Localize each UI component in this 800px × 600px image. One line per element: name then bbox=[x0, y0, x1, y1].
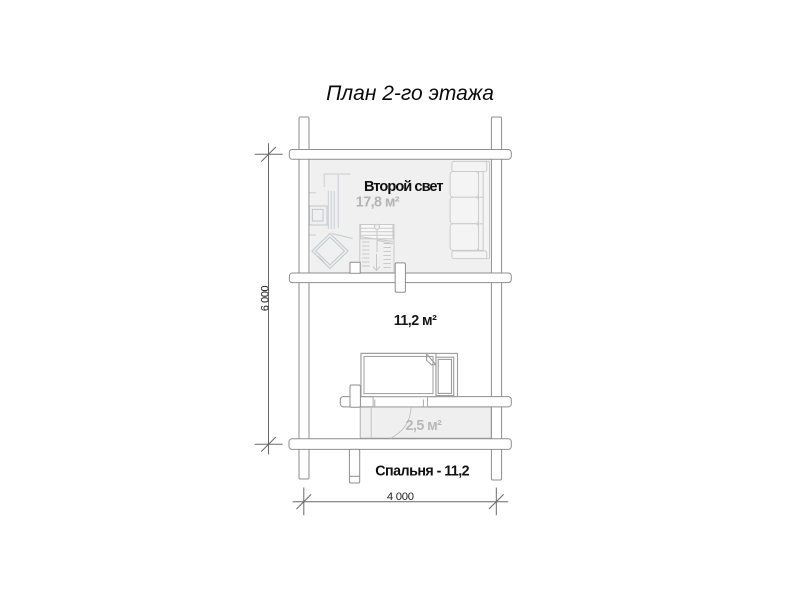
svg-text:Спальня - 11,2: Спальня - 11,2 bbox=[375, 463, 469, 479]
svg-text:17,8 м²: 17,8 м² bbox=[356, 194, 400, 210]
svg-text:Второй свет: Второй свет bbox=[364, 179, 443, 195]
svg-text:6 000: 6 000 bbox=[259, 286, 271, 312]
svg-text:2,5 м²: 2,5 м² bbox=[406, 418, 443, 434]
svg-text:План 2-го этажа: План 2-го этажа bbox=[326, 82, 494, 105]
svg-text:4 000: 4 000 bbox=[387, 491, 414, 503]
svg-text:11,2 м²: 11,2 м² bbox=[394, 313, 437, 329]
